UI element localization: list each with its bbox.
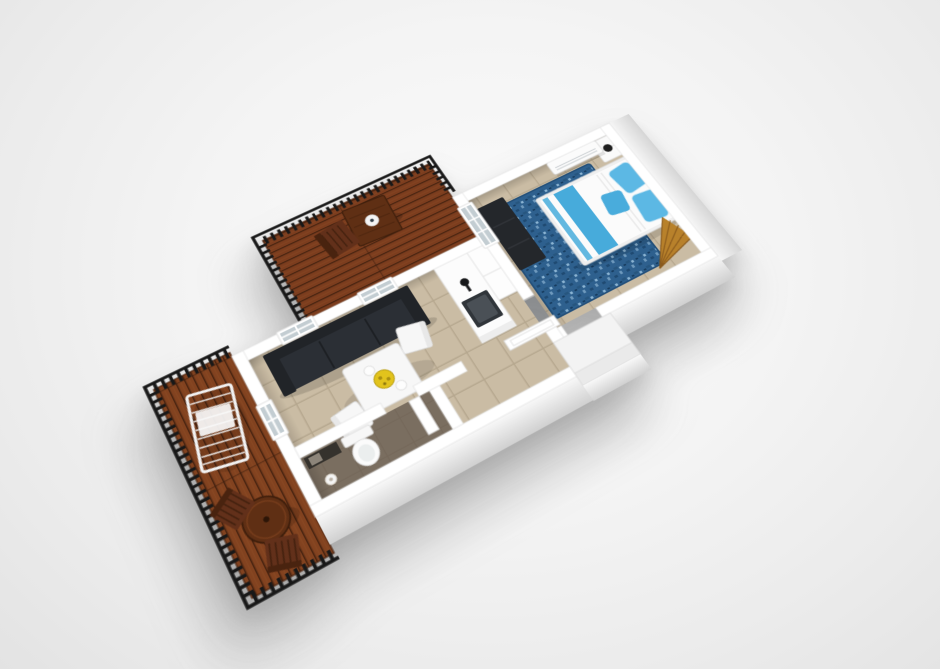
floor-plan-model bbox=[94, 65, 848, 669]
floor-plan-svg bbox=[94, 65, 848, 669]
deck-chair-2 bbox=[264, 533, 302, 573]
render-canvas bbox=[0, 0, 940, 669]
